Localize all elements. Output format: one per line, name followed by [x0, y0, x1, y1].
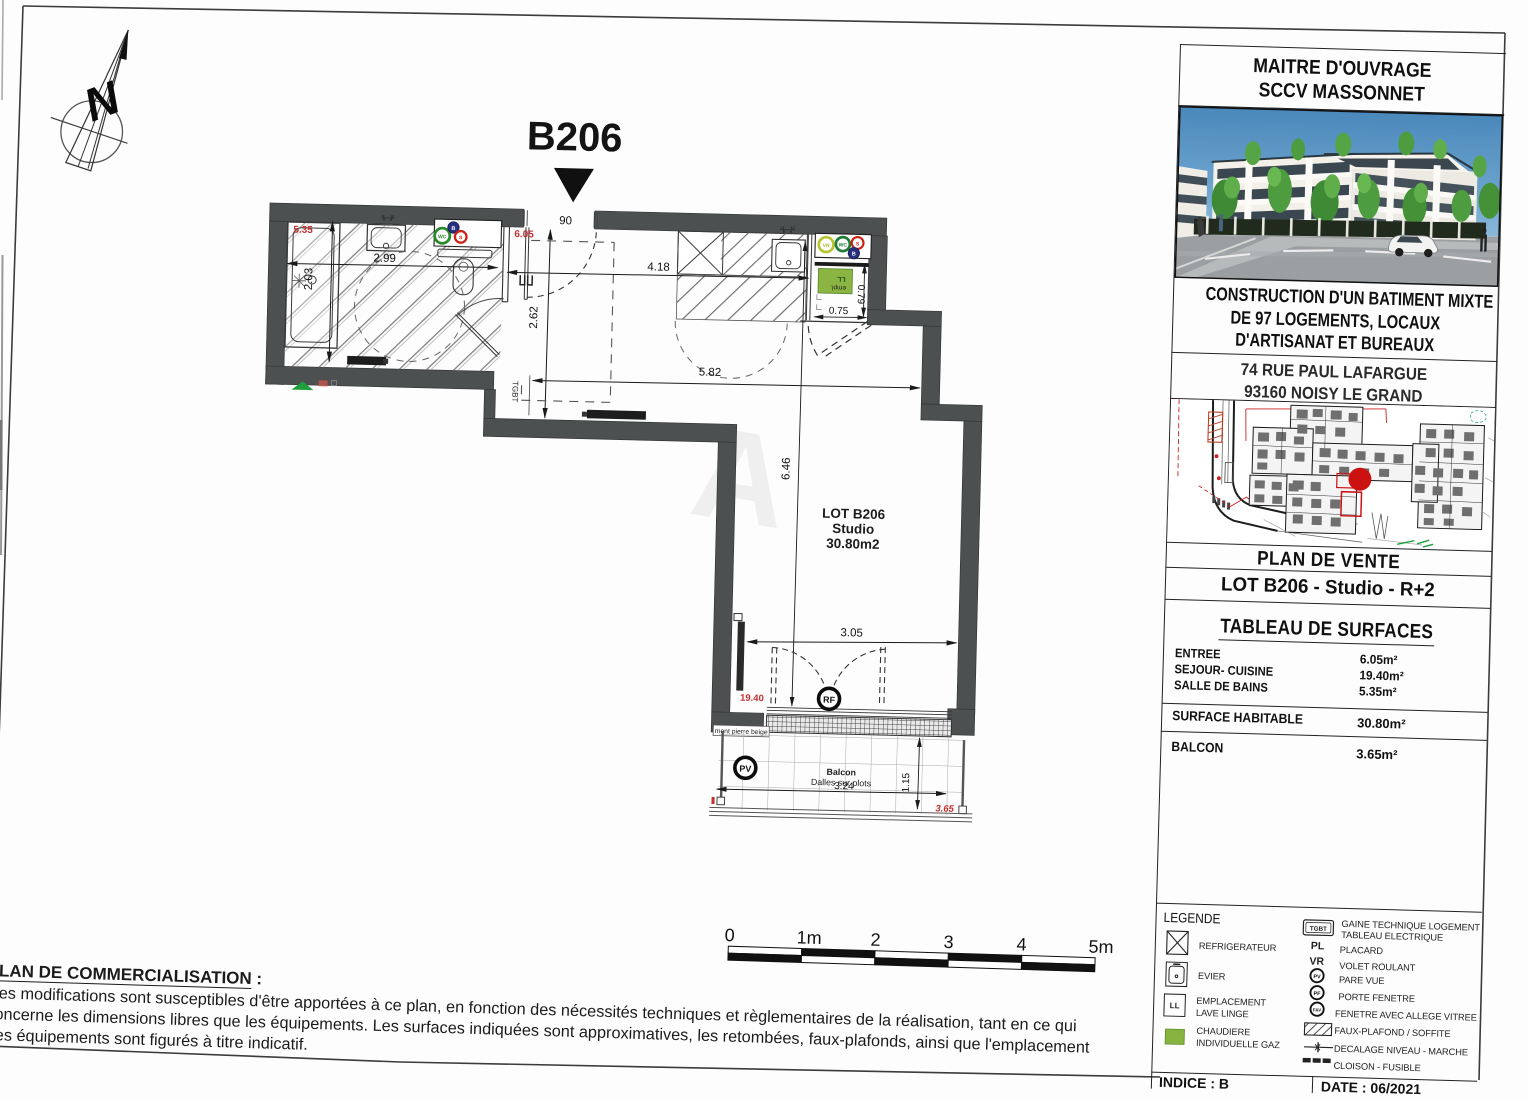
- svg-text:Studio: Studio: [832, 521, 874, 537]
- svg-text:PL: PL: [1311, 940, 1325, 952]
- svg-text:B206: B206: [526, 114, 623, 160]
- svg-text:VR: VR: [823, 243, 830, 249]
- svg-text:TGBT: TGBT: [510, 381, 520, 403]
- svg-text:FAV: FAV: [1313, 1007, 1321, 1012]
- svg-text:LL: LL: [1170, 1001, 1180, 1010]
- svg-text:4.18: 4.18: [647, 261, 670, 274]
- svg-text:0.79: 0.79: [855, 285, 866, 305]
- svg-text:PV: PV: [1313, 974, 1321, 980]
- svg-text:WC: WC: [839, 242, 848, 248]
- svg-text:PF: PF: [1313, 991, 1321, 997]
- svg-text:empl.: empl.: [830, 284, 846, 291]
- svg-text:2.03: 2.03: [303, 268, 316, 291]
- svg-text:B: B: [451, 226, 455, 232]
- svg-text:0.75: 0.75: [829, 306, 849, 317]
- svg-text:RF: RF: [823, 695, 836, 705]
- svg-text:5.35: 5.35: [293, 225, 313, 236]
- svg-text:TGBT: TGBT: [1310, 925, 1327, 932]
- svg-text:Balcon: Balcon: [826, 767, 856, 778]
- svg-text:VR: VR: [1309, 955, 1324, 967]
- svg-text:30.80m2: 30.80m2: [826, 536, 880, 552]
- svg-text:2.62: 2.62: [528, 306, 541, 329]
- svg-text:5.82: 5.82: [699, 367, 722, 380]
- svg-text:LL: LL: [836, 275, 845, 282]
- svg-text:90: 90: [559, 215, 572, 227]
- svg-text:LOT B206: LOT B206: [822, 506, 886, 523]
- svg-text:B: B: [852, 252, 856, 258]
- svg-text:6.05: 6.05: [514, 229, 534, 240]
- svg-text:2.99: 2.99: [373, 253, 396, 266]
- svg-text:PV: PV: [739, 764, 751, 774]
- svg-text:6.46: 6.46: [780, 457, 793, 480]
- svg-text:3.05: 3.05: [840, 627, 863, 640]
- svg-text:3.24: 3.24: [834, 781, 854, 792]
- svg-text:1.15: 1.15: [901, 772, 912, 792]
- svg-text:WC: WC: [438, 234, 447, 240]
- svg-text:19.40: 19.40: [740, 693, 764, 705]
